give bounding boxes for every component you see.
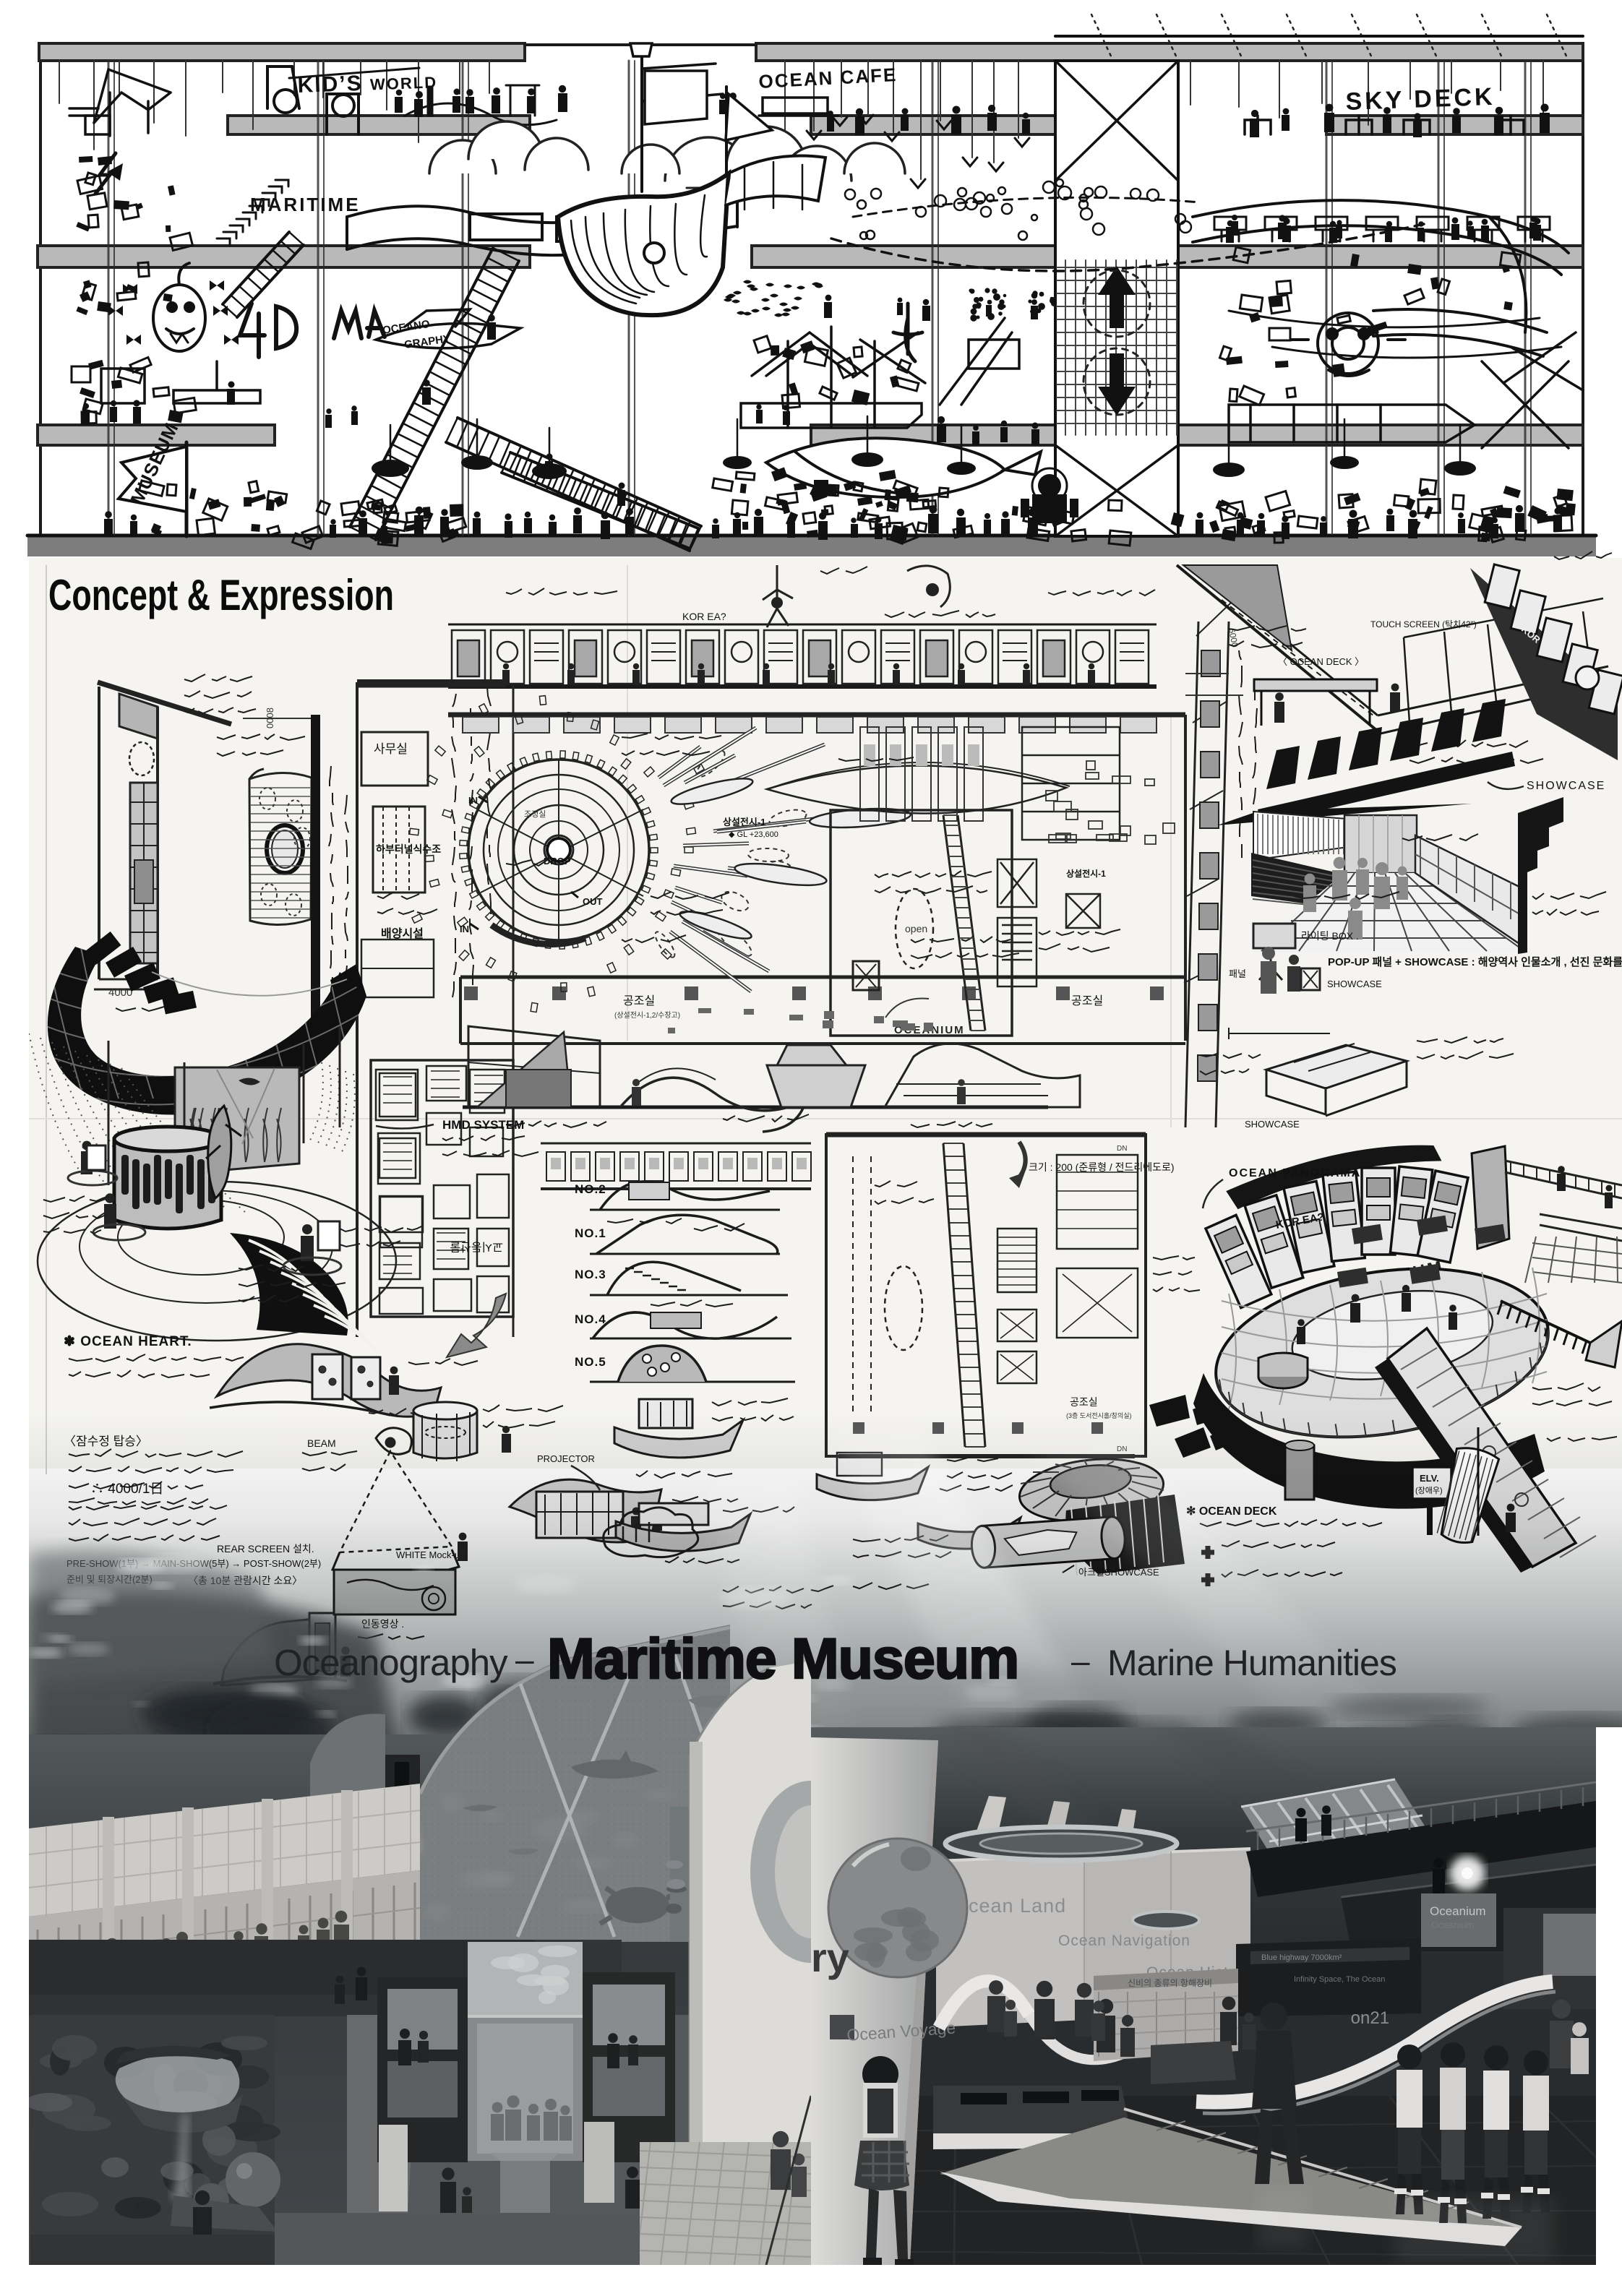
svg-text:on21: on21 [1346,2008,1389,2028]
svg-text:Blue highway 7000km²: Blue highway 7000km² [1261,1953,1342,1962]
svg-text:Ocean Navigation: Ocean Navigation [1058,1932,1190,1949]
svg-text:NO.4: NO.4 [575,1312,606,1326]
svg-text:KOR EA?: KOR EA? [682,611,726,622]
svg-text:Concept & Expression: Concept & Expression [48,571,394,619]
svg-text:NO.5: NO.5 [575,1355,606,1369]
svg-text:SHOWCASE: SHOWCASE [1245,1119,1300,1130]
svg-text:신비의 종류의 항해장비: 신비의 종류의 항해장비 [1128,1978,1212,1988]
svg-text:IN: IN [468,795,478,806]
svg-text:상설전시-1: 상설전시-1 [1066,868,1106,879]
svg-text:상설전시-1: 상설전시-1 [723,817,765,827]
svg-text:사무실: 사무실 [374,742,408,756]
svg-text:(상설전시-1,2/수장고): (상설전시-1,2/수장고) [614,1011,680,1020]
svg-text:MARITIME: MARITIME [250,194,361,215]
svg-text:–: – [1071,1642,1090,1680]
svg-text:IN: IN [460,924,469,934]
svg-text:Maritime Museum: Maritime Museum [547,1626,1018,1690]
svg-text:–: – [515,1641,534,1678]
svg-text:SHOWCASE: SHOWCASE [1327,979,1382,989]
svg-text:◆ GL +23,600: ◆ GL +23,600 [729,830,778,839]
svg-text:Ocean Land: Ocean Land [953,1895,1066,1917]
svg-text:SKY DECK: SKY DECK [1345,83,1496,116]
svg-text:NO.2: NO.2 [575,1182,606,1196]
svg-text:패널: 패널 [1229,968,1246,979]
svg-text:ry: ry [811,1935,849,1980]
svg-text:TOUCH SCREEN (탁치42″): TOUCH SCREEN (탁치42″) [1370,619,1477,629]
svg-text:OUT: OUT [583,896,603,907]
svg-text:NO.1: NO.1 [575,1226,606,1240]
svg-text:POP-UP 패널 + SHOWCASE : 해양역사 인물: POP-UP 패널 + SHOWCASE : 해양역사 인물소개 , 선진 문화… [1328,955,1622,968]
svg-text:open: open [905,923,927,934]
svg-text:0008: 0008 [265,708,275,728]
svg-text:DN: DN [1117,1145,1127,1153]
svg-text:HMD SYSTEM: HMD SYSTEM [442,1118,524,1132]
svg-text:Infinity Space, The Ocean: Infinity Space, The Ocean [1294,1975,1385,1984]
svg-text:✽ OCEAN HEART.: ✽ OCEAN HEART. [64,1334,192,1349]
svg-text:조정실: 조정실 [524,809,546,819]
svg-text:NO.3: NO.3 [575,1268,606,1281]
svg-text:OCEAN PANORAMA: OCEAN PANORAMA [1229,1167,1361,1179]
svg-text:Oceanium: Oceanium [1431,1919,1474,1930]
svg-text:교시동산물: 교시동산물 [450,1240,503,1253]
svg-text:공조실: 공조실 [623,994,655,1007]
svg-text:Oceanography: Oceanography [274,1642,508,1683]
svg-text:공조실: 공조실 [1070,1396,1098,1408]
svg-text:라이팅 BOX .: 라이팅 BOX . [1301,930,1359,942]
svg-text:배양시설: 배양시설 [381,927,424,940]
svg-text:DROP: DROP [544,856,571,867]
svg-text:Marine Humanities: Marine Humanities [1107,1643,1396,1683]
svg-text:〈 OCEAN DECK 〉: 〈 OCEAN DECK 〉 [1278,656,1364,667]
svg-text:크기 : 200 (준류형 / 전드리에도로): 크기 : 200 (준류형 / 전드리에도로) [1029,1161,1175,1173]
svg-text:SHOWCASE: SHOWCASE [1527,780,1605,792]
svg-text:공조실: 공조실 [1071,994,1103,1007]
svg-text:하부터널식수조: 하부터널식수조 [376,843,441,855]
svg-text:Oceanium: Oceanium [1430,1904,1485,1918]
svg-text:4000: 4000 [108,986,132,999]
